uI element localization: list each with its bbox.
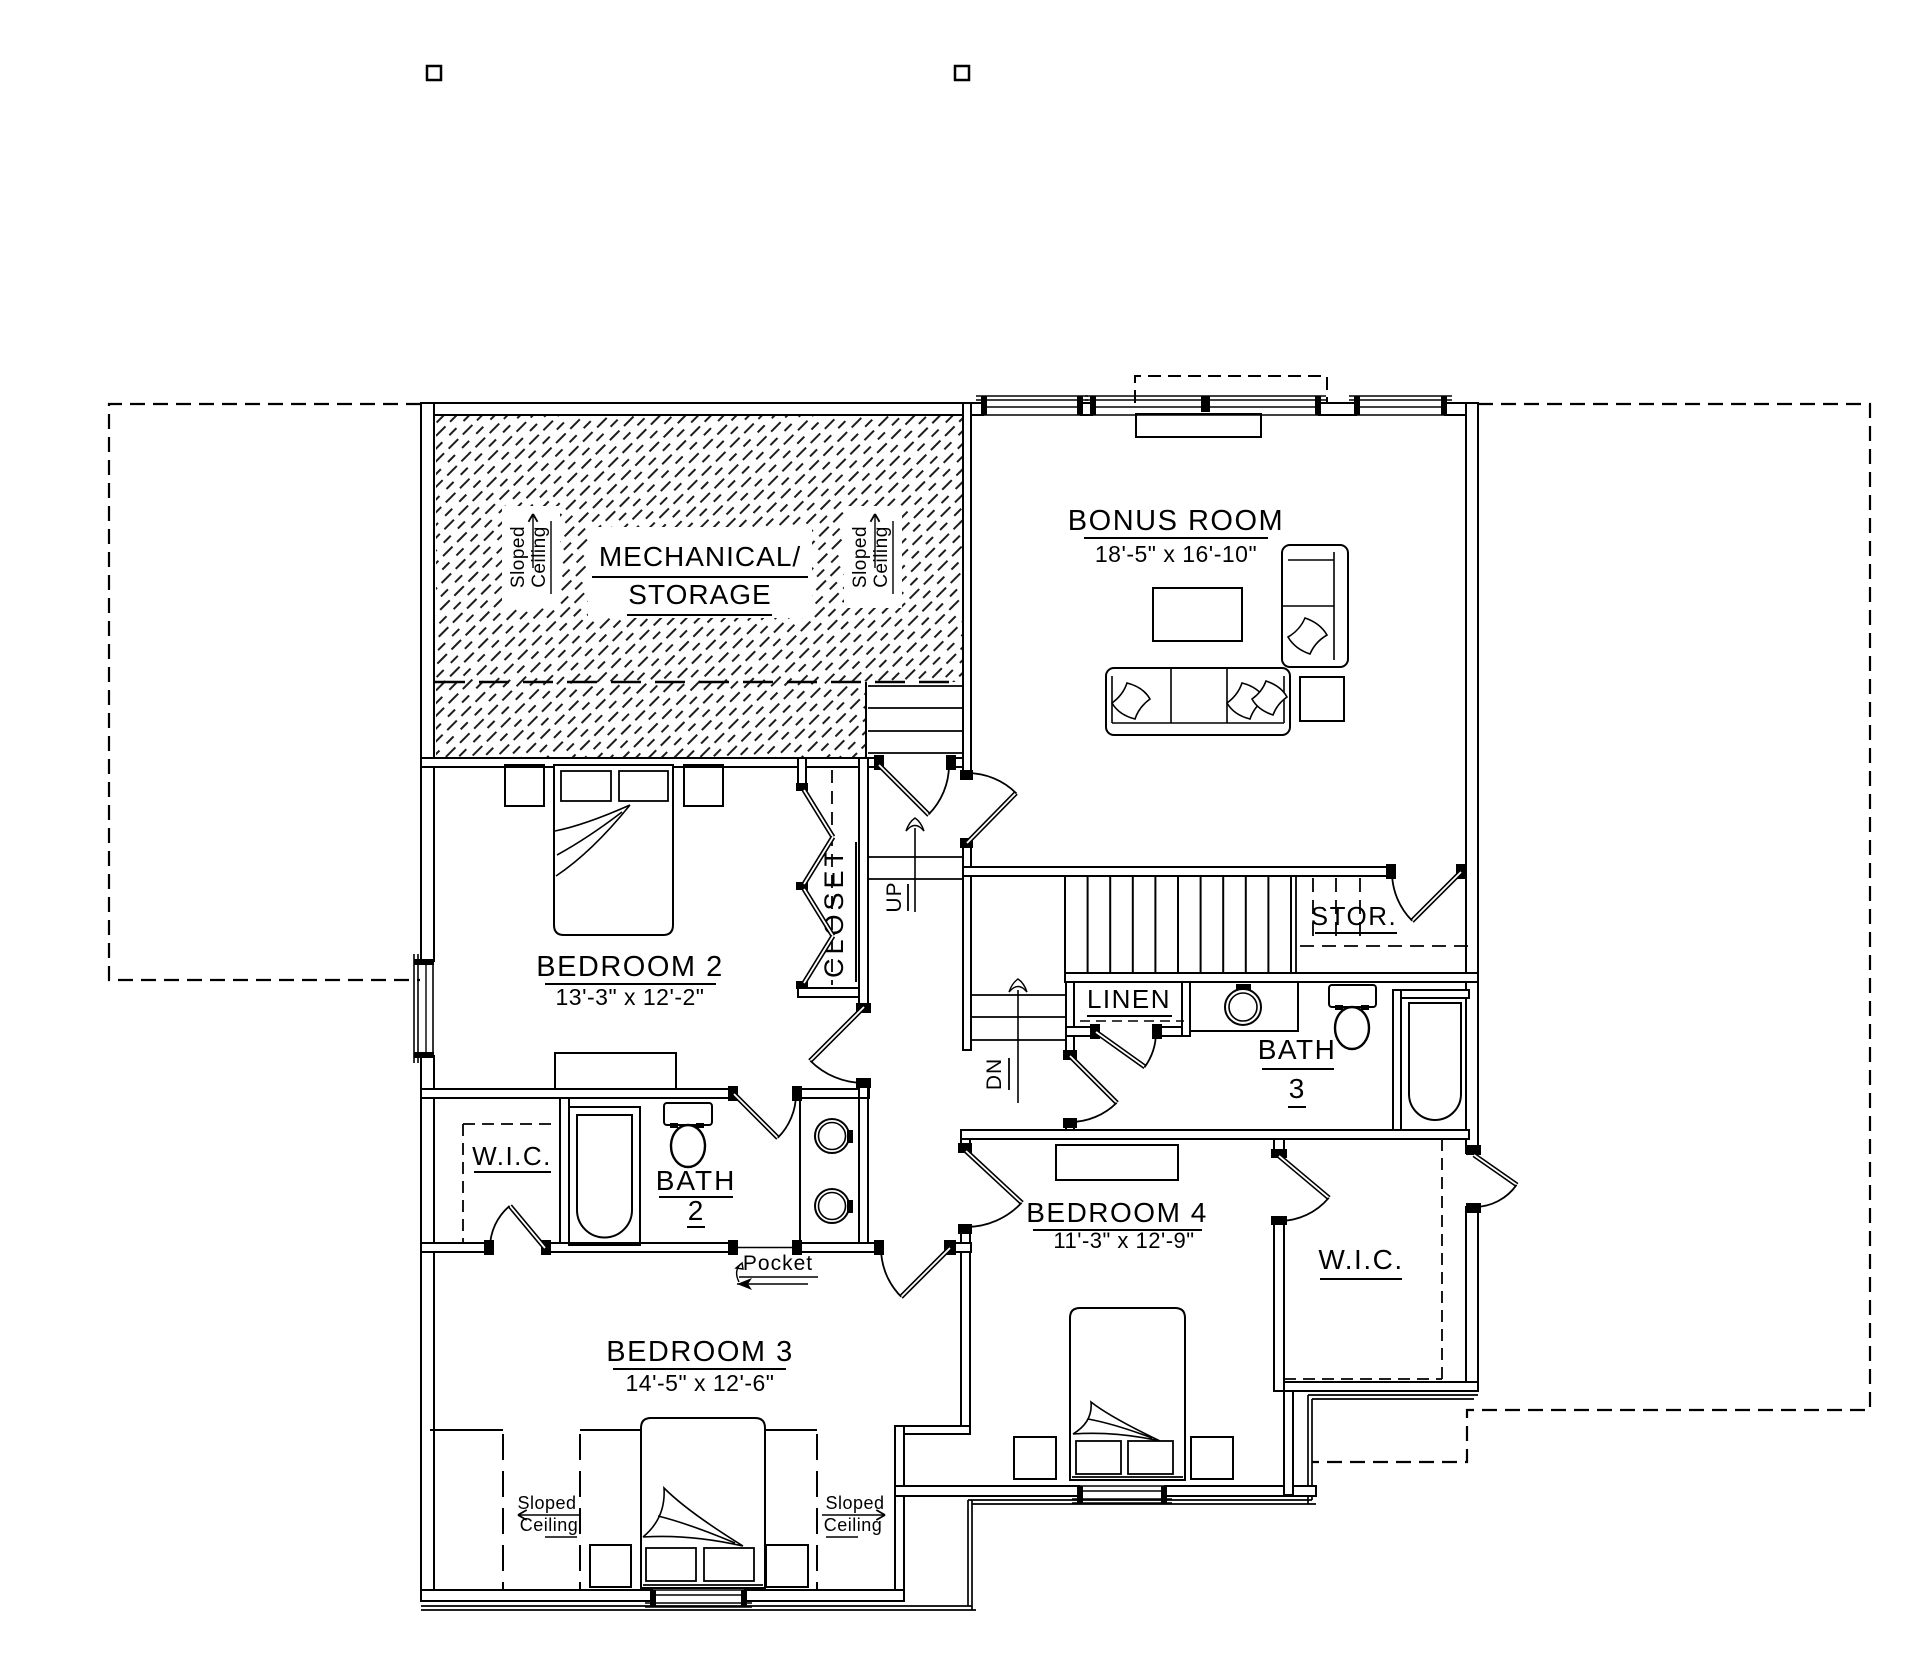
svg-text:DN: DN	[983, 1058, 1006, 1090]
svg-text:18'-5" x 16'-10": 18'-5" x 16'-10"	[1095, 541, 1257, 567]
svg-text:Sloped: Sloped	[850, 526, 871, 588]
svg-text:BATH: BATH	[656, 1165, 737, 1196]
svg-text:Ceiling: Ceiling	[824, 1515, 883, 1535]
svg-text:Sloped: Sloped	[508, 526, 529, 588]
svg-text:14'-5" x 12'-6": 14'-5" x 12'-6"	[626, 1370, 775, 1396]
svg-text:2: 2	[688, 1195, 705, 1226]
svg-text:Ceiling: Ceiling	[520, 1515, 579, 1535]
svg-text:W.I.C.: W.I.C.	[472, 1141, 552, 1171]
svg-text:UP: UP	[883, 881, 906, 912]
svg-text:Pocket: Pocket	[743, 1252, 813, 1275]
svg-text:STOR.: STOR.	[1311, 901, 1397, 931]
svg-text:Ceiling: Ceiling	[871, 526, 892, 588]
svg-text:CLOSET: CLOSET	[819, 846, 849, 978]
svg-text:LINEN: LINEN	[1087, 984, 1171, 1014]
svg-text:BEDROOM 4: BEDROOM 4	[1026, 1197, 1208, 1228]
svg-text:BATH: BATH	[1258, 1034, 1337, 1065]
svg-text:MECHANICAL/: MECHANICAL/	[599, 541, 801, 572]
svg-text:3: 3	[1289, 1073, 1306, 1104]
svg-text:Ceiling: Ceiling	[529, 526, 550, 588]
svg-text:STORAGE: STORAGE	[628, 579, 771, 610]
svg-text:11'-3" x 12'-9": 11'-3" x 12'-9"	[1053, 1228, 1194, 1253]
svg-text:BEDROOM 2: BEDROOM 2	[536, 951, 724, 983]
svg-text:13'-3" x 12'-2": 13'-3" x 12'-2"	[556, 984, 705, 1010]
svg-text:BONUS ROOM: BONUS ROOM	[1068, 505, 1284, 537]
svg-text:W.I.C.: W.I.C.	[1318, 1244, 1403, 1275]
svg-text:Sloped: Sloped	[825, 1493, 884, 1513]
svg-text:BEDROOM 3: BEDROOM 3	[606, 1336, 794, 1368]
